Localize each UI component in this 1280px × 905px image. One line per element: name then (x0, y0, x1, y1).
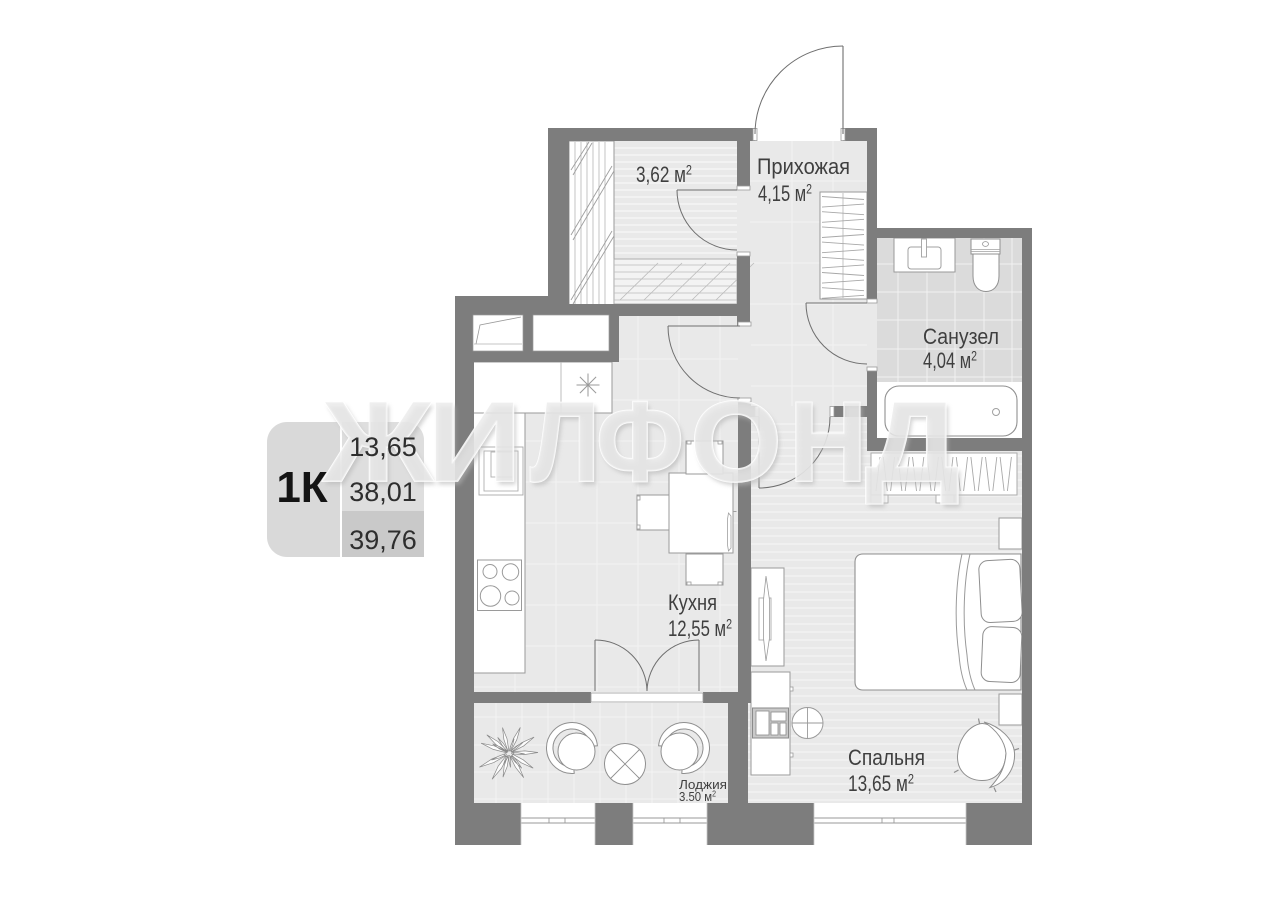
svg-text:12,55 м2: 12,55 м2 (668, 616, 732, 642)
svg-text:Спальня: Спальня (848, 745, 925, 770)
svg-text:Ф: Ф (596, 379, 684, 506)
svg-text:Санузел: Санузел (923, 324, 999, 349)
svg-text:39,76: 39,76 (349, 525, 417, 555)
svg-text:3,62 м2: 3,62 м2 (636, 162, 692, 188)
svg-text:38,01: 38,01 (349, 477, 417, 507)
svg-text:Д: Д (865, 379, 960, 506)
svg-text:И: И (427, 379, 522, 506)
svg-text:4,04 м2: 4,04 м2 (923, 348, 977, 374)
svg-text:Л: Л (530, 379, 600, 506)
svg-text:3.50 м2: 3.50 м2 (679, 789, 716, 804)
svg-text:Прихожая: Прихожая (757, 154, 850, 179)
svg-text:Кухня: Кухня (668, 590, 717, 615)
svg-text:О: О (690, 379, 782, 506)
svg-text:1К: 1К (276, 463, 327, 512)
svg-text:Н: Н (789, 379, 867, 506)
svg-text:4,15 м2: 4,15 м2 (758, 181, 812, 207)
svg-text:13,65 м2: 13,65 м2 (848, 771, 914, 797)
svg-text:13,65: 13,65 (349, 432, 417, 462)
